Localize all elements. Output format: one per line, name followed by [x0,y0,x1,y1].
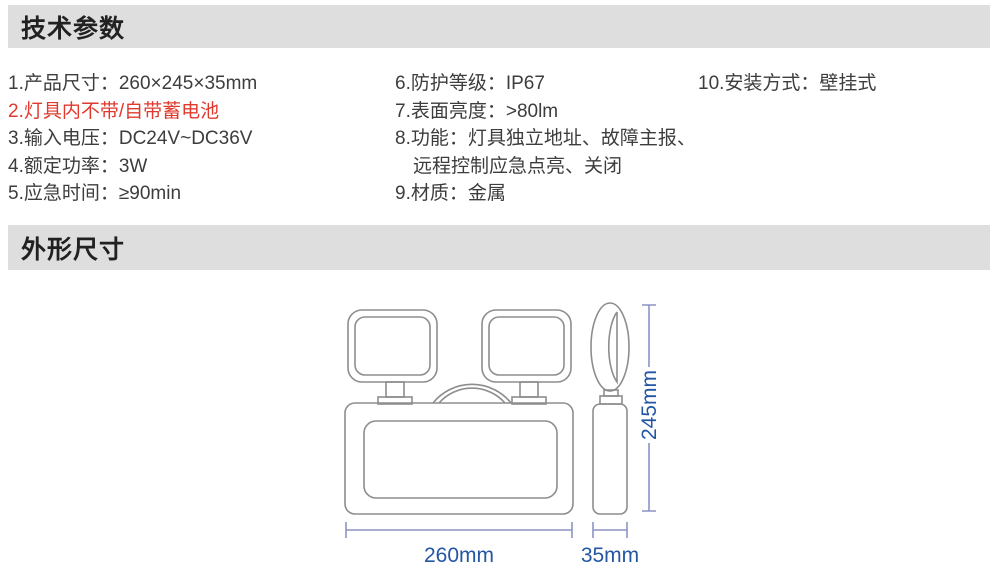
dimension-height-label: 245mm [638,370,661,440]
spec-item-emergency-time: 5.应急时间：≥90min [8,180,257,208]
outline-section-bar: 外形尺寸 [8,225,990,270]
left-lamp-neck [386,382,404,397]
dimension-width-label: 260mm [424,544,494,567]
outline-dimension-drawing: 260mm 35mm 245mm [330,295,690,575]
spec-item-function-continued: 远程控制应急点亮、关闭 [395,153,696,181]
outline-title: 外形尺寸 [21,230,125,266]
right-lamp-neck [520,382,538,397]
spec-column-2: 6.防护等级：IP67 7.表面亮度：>80lm 8.功能：灯具独立地址、故障主… [395,70,696,208]
side-view-drawing [591,303,629,514]
spec-item-ip-rating: 6.防护等级：IP67 [395,70,696,98]
dimension-depth: 35mm [581,522,639,567]
right-lamp-head-outer [482,310,571,382]
dimension-depth-line [593,522,627,538]
front-view-drawing [345,310,573,514]
center-dome-outer-arc [433,384,511,403]
spec-item-mounting: 10.安装方式：壁挂式 [698,70,876,98]
luminaire-outline-svg: 260mm 35mm 245mm [330,295,690,575]
front-body-inner [364,421,557,498]
spec-item-rated-power: 4.额定功率：3W [8,153,257,181]
dimension-width-line [346,522,572,538]
spec-item-product-size: 1.产品尺寸：260×245×35mm [8,70,257,98]
side-lamp-flange [600,396,622,404]
dimension-height: 245mm [638,305,661,511]
spec-column-1: 1.产品尺寸：260×245×35mm 2.灯具内不带/自带蓄电池 3.输入电压… [8,70,257,208]
dimension-depth-label: 35mm [581,544,639,567]
side-lamp-head-ellipse [591,303,629,391]
side-lamp-lens-profile [609,312,617,382]
spec-column-3: 10.安装方式：壁挂式 [698,70,876,98]
right-lamp-head-inner [489,317,564,375]
tech-params-section-bar: 技术参数 [8,5,990,48]
side-body [593,404,627,514]
left-lamp-head-inner [355,317,430,375]
tech-params-title: 技术参数 [21,9,125,45]
spec-item-input-voltage: 3.输入电压：DC24V~DC36V [8,125,257,153]
spec-item-battery-note: 2.灯具内不带/自带蓄电池 [8,98,257,126]
spec-item-surface-brightness: 7.表面亮度：>80lm [395,98,696,126]
left-lamp-head-outer [348,310,437,382]
dimension-width: 260mm [346,522,572,567]
spec-item-function: 8.功能：灯具独立地址、故障主报、 [395,125,696,153]
spec-item-material: 9.材质：金属 [395,180,696,208]
